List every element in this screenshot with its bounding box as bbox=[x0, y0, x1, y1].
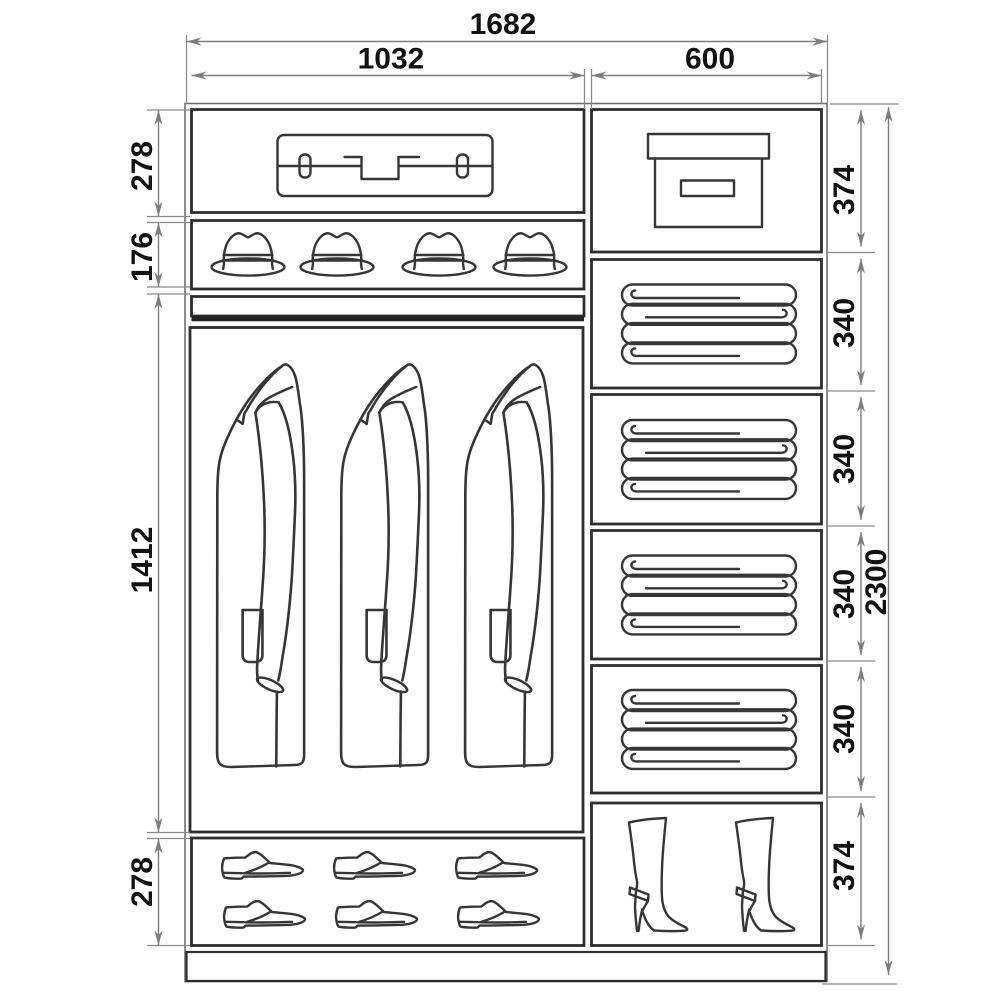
svg-text:1032: 1032 bbox=[358, 43, 425, 76]
svg-text:1412: 1412 bbox=[126, 527, 159, 594]
svg-text:278: 278 bbox=[126, 141, 159, 191]
svg-text:340: 340 bbox=[828, 434, 861, 484]
svg-text:278: 278 bbox=[126, 857, 159, 907]
svg-text:1682: 1682 bbox=[470, 8, 537, 41]
svg-text:600: 600 bbox=[685, 43, 735, 76]
svg-text:176: 176 bbox=[126, 232, 159, 282]
svg-text:340: 340 bbox=[828, 298, 861, 348]
svg-text:374: 374 bbox=[828, 841, 861, 891]
svg-text:2300: 2300 bbox=[860, 549, 893, 616]
svg-text:340: 340 bbox=[828, 569, 861, 619]
svg-text:340: 340 bbox=[828, 704, 861, 754]
svg-text:374: 374 bbox=[828, 165, 861, 215]
